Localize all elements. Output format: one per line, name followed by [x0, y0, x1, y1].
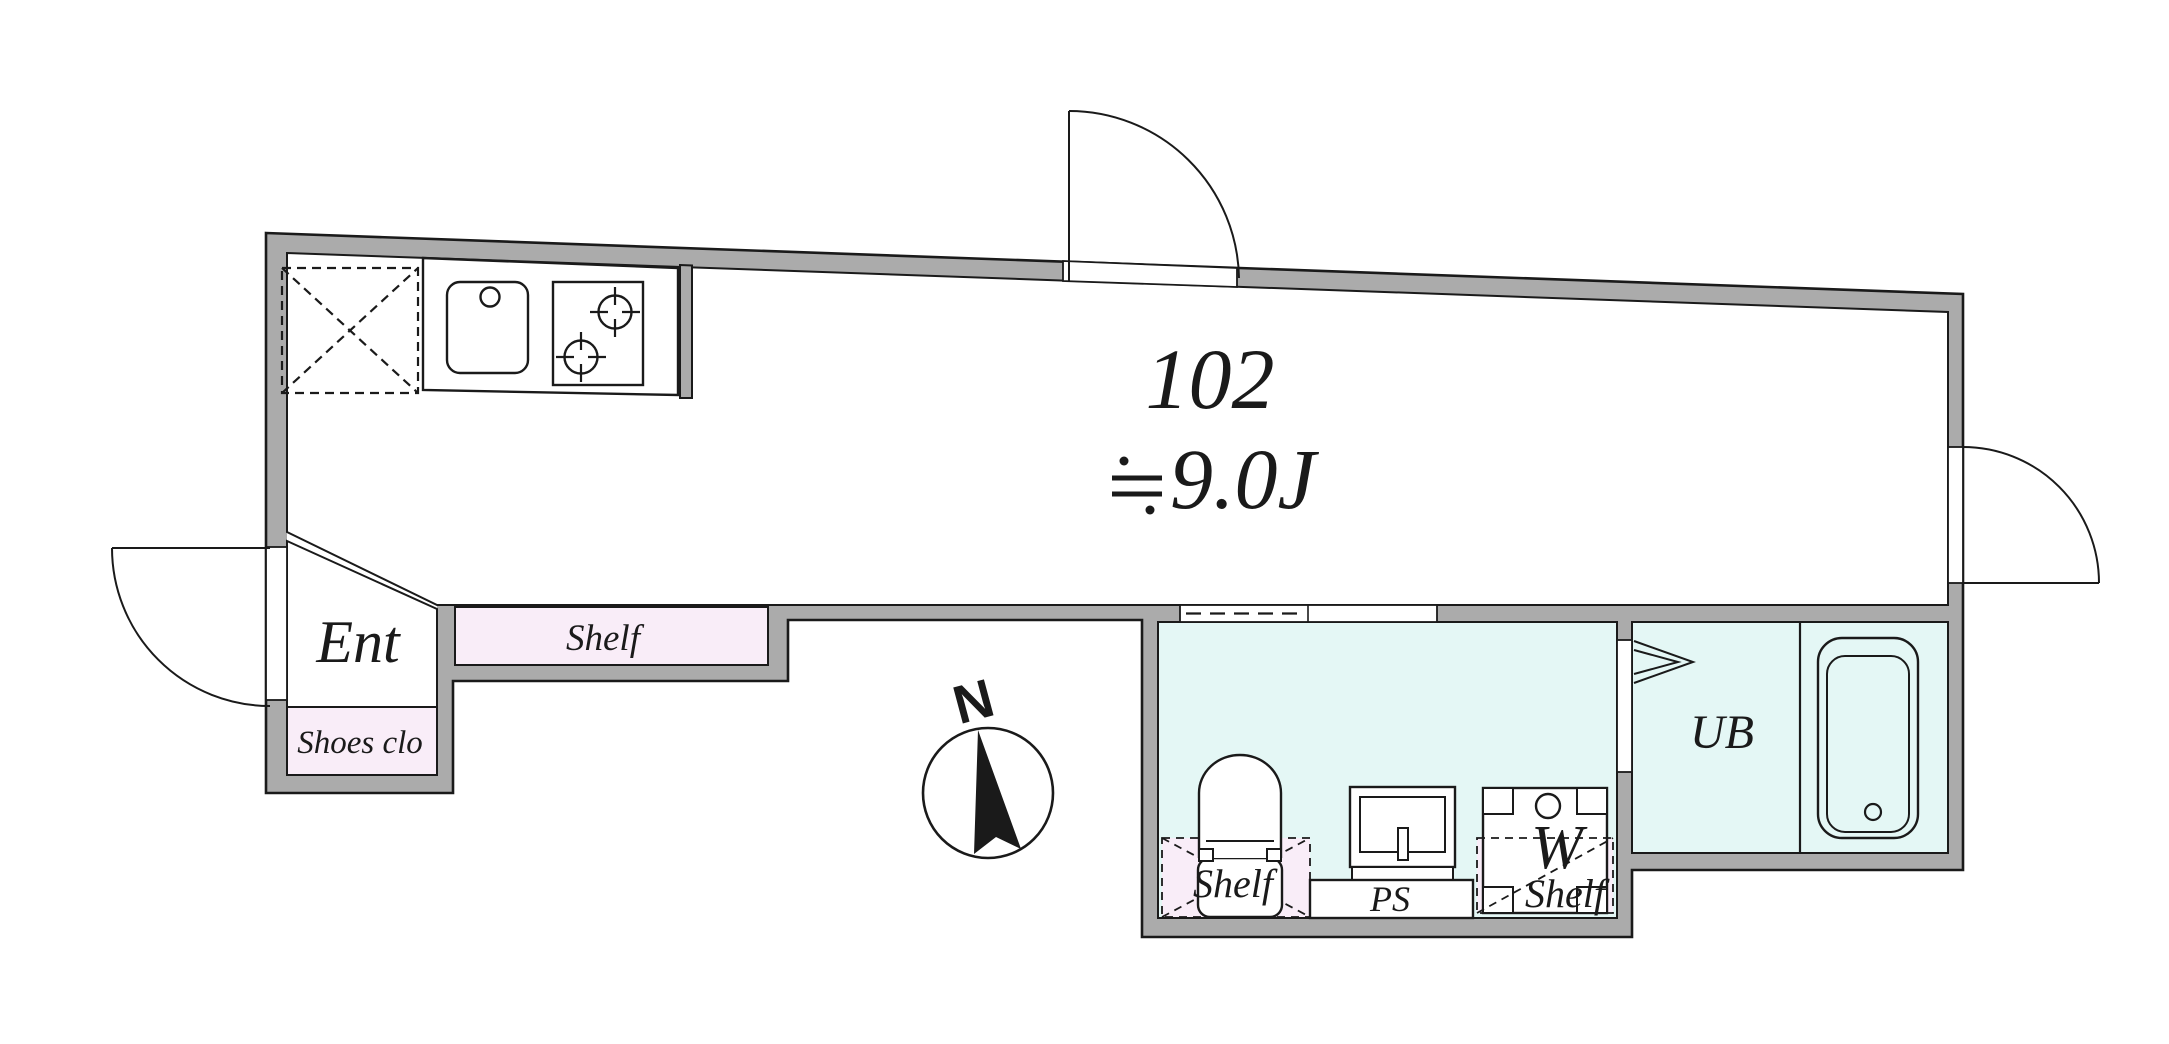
- right-door-opening: [1948, 447, 1963, 583]
- entrance-door-arc: [112, 548, 270, 706]
- compass: N: [923, 668, 1053, 858]
- entry-shelf-label: Shelf: [566, 618, 645, 659]
- north-label: N: [947, 668, 1000, 736]
- unit-number-label: 102: [1146, 331, 1275, 427]
- floor-plan: N 102 9.0J Ent Shoes clo Shelf Shelf W S…: [0, 0, 2169, 1044]
- kitchen-wall-stub: [680, 265, 692, 398]
- toilet-shelf-label: Shelf: [1193, 861, 1278, 906]
- unit-bath-label: UB: [1690, 706, 1754, 759]
- pipe-space-label: PS: [1369, 879, 1410, 919]
- sliding-door: [1180, 605, 1437, 622]
- area-label: 9.0J: [1170, 431, 1320, 527]
- right-door-arc: [1963, 447, 2099, 583]
- washer-shelf-label: Shelf: [1525, 871, 1610, 916]
- bath-door-opening: [1617, 640, 1632, 772]
- sink-faucet: [481, 288, 500, 307]
- stove: [553, 282, 643, 385]
- vanity: [1350, 787, 1455, 880]
- balcony-door-arc: [1069, 111, 1239, 281]
- shoes-closet-label: Shoes clo: [297, 725, 423, 761]
- entrance-door-opening: [266, 547, 287, 700]
- entrance-label: Ent: [315, 609, 401, 675]
